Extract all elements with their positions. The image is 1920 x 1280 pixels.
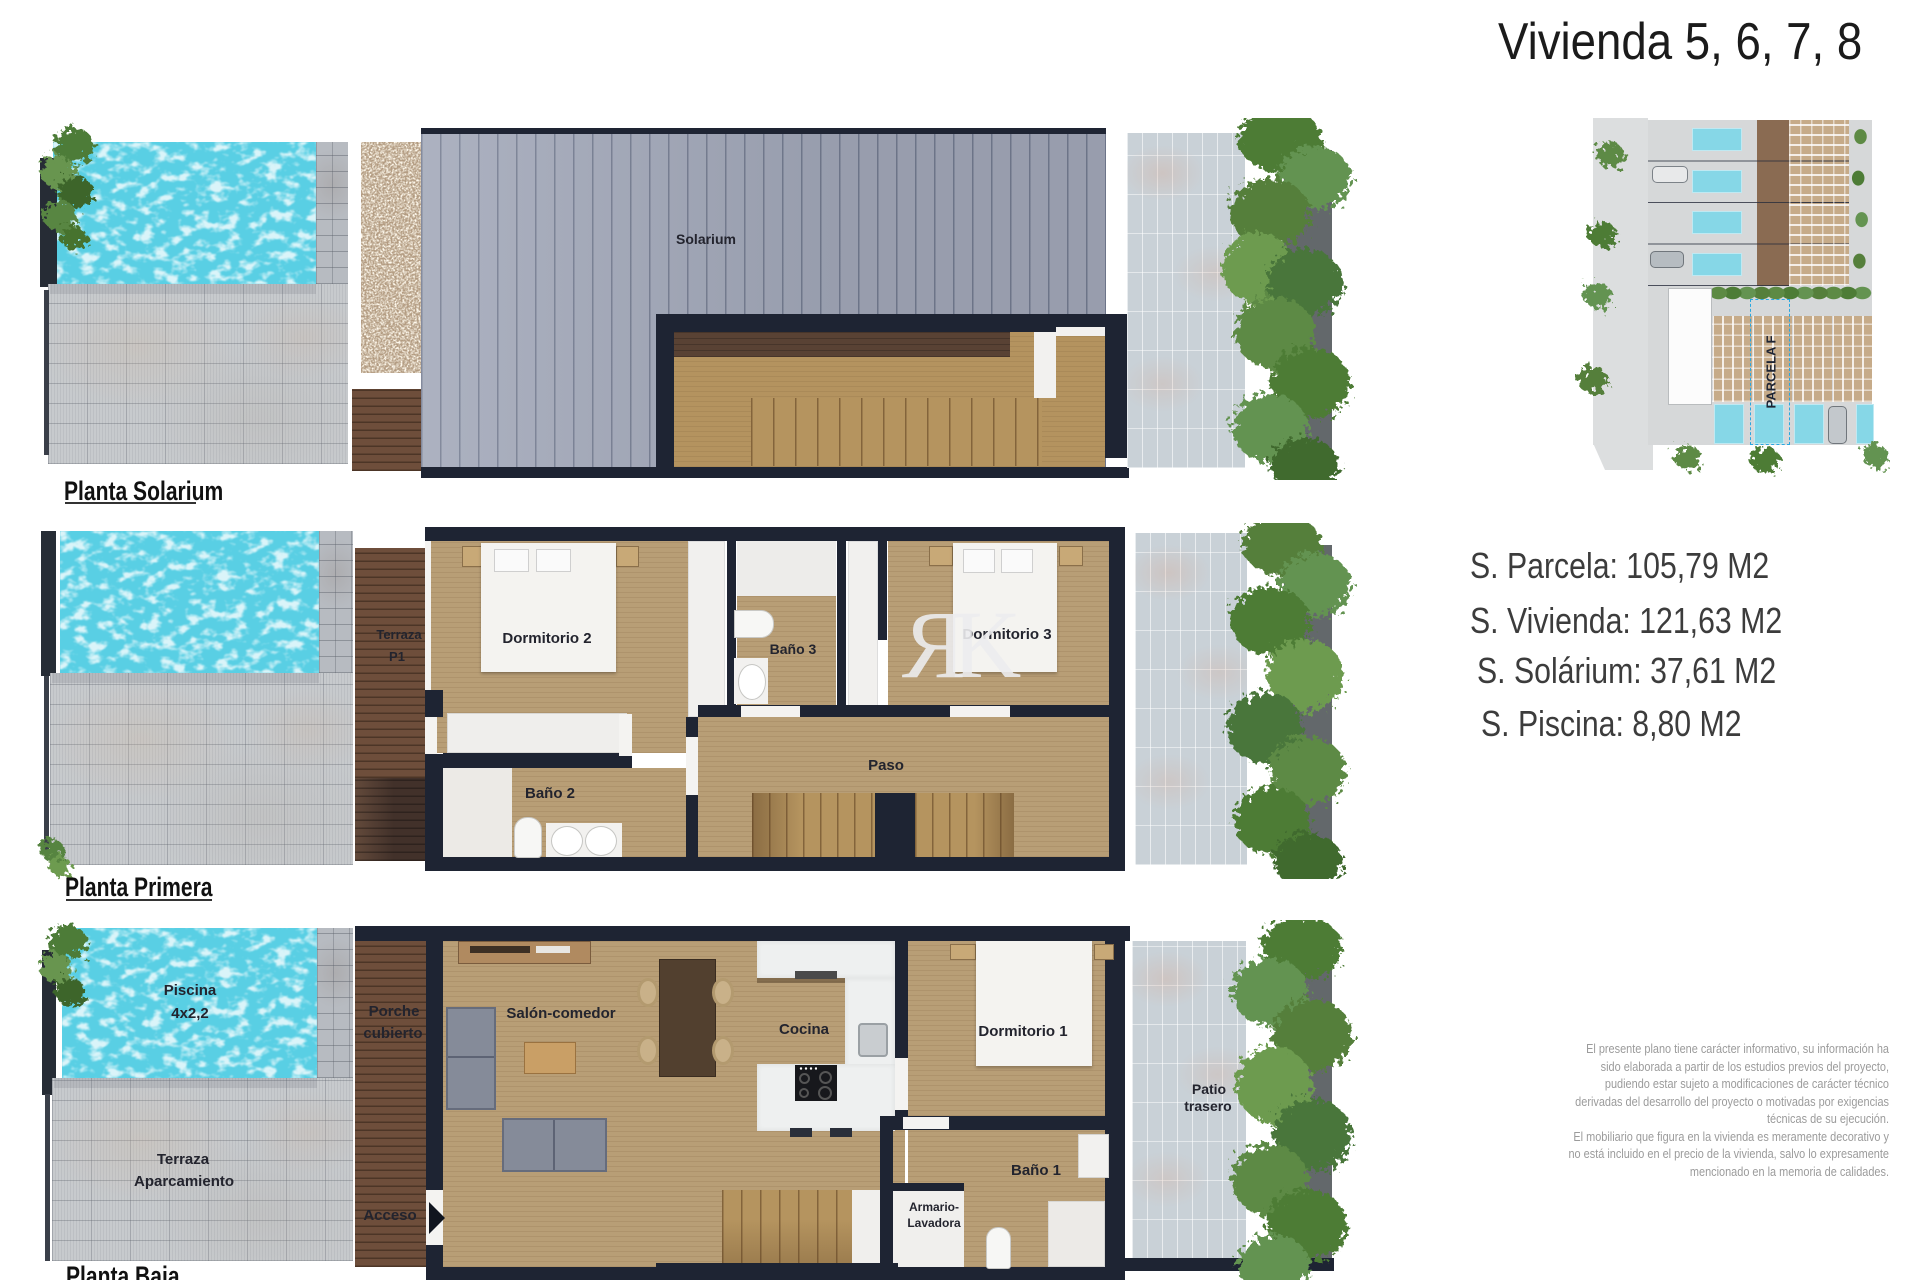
svg-text:PARCELA F: PARCELA F [1764, 335, 1779, 408]
